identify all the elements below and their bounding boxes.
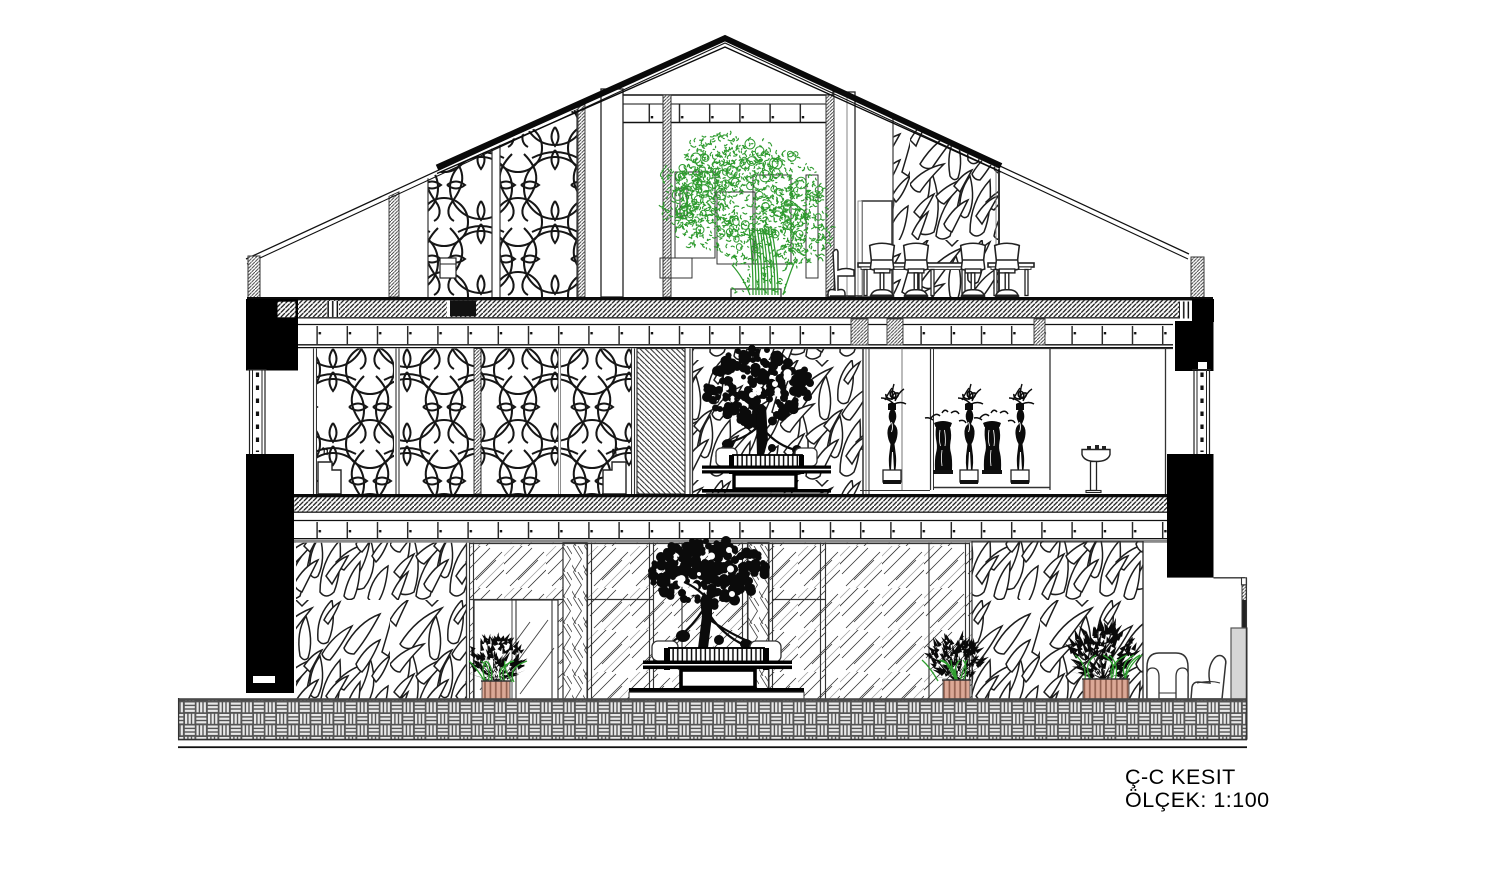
svg-text:Ç-C KESIT: Ç-C KESIT	[1125, 765, 1236, 789]
svg-text:ÖLÇEK: 1:100: ÖLÇEK: 1:100	[1125, 788, 1270, 812]
